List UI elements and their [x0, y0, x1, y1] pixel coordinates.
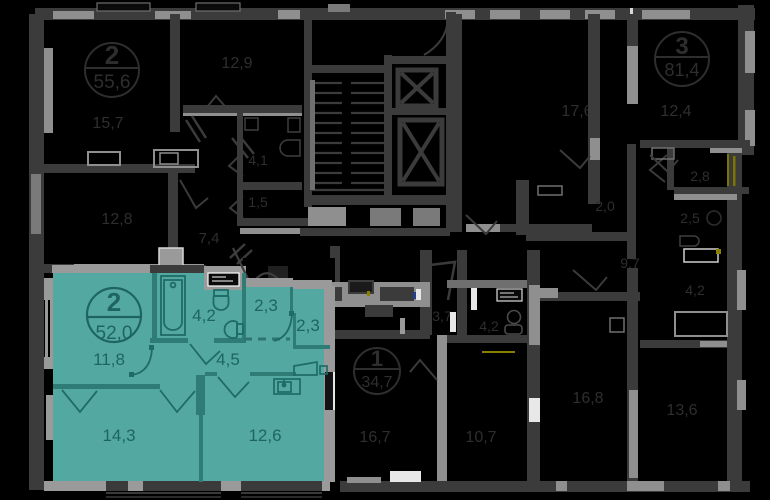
svg-text:13,6: 13,6: [666, 402, 697, 419]
svg-text:55,6: 55,6: [94, 72, 131, 93]
svg-text:16,8: 16,8: [572, 390, 603, 407]
svg-text:12,9: 12,9: [221, 55, 252, 72]
svg-text:7,4: 7,4: [199, 230, 220, 247]
svg-text:1,5: 1,5: [248, 194, 268, 210]
svg-text:2,8: 2,8: [690, 168, 710, 184]
svg-text:3,7: 3,7: [432, 308, 452, 324]
svg-text:17,6: 17,6: [561, 103, 592, 120]
svg-text:2,3: 2,3: [254, 296, 278, 315]
svg-text:12,4: 12,4: [660, 103, 691, 120]
svg-text:2: 2: [105, 40, 119, 70]
svg-text:12,6: 12,6: [248, 426, 281, 445]
svg-text:15,7: 15,7: [92, 115, 123, 132]
svg-text:2,5: 2,5: [680, 210, 700, 226]
svg-text:4,2: 4,2: [479, 318, 499, 334]
svg-text:16,7: 16,7: [359, 429, 390, 446]
svg-text:81,4: 81,4: [664, 60, 699, 80]
svg-text:2,0: 2,0: [595, 198, 615, 214]
svg-text:1: 1: [371, 346, 383, 371]
svg-text:2,3: 2,3: [296, 316, 320, 335]
svg-text:4,5: 4,5: [216, 350, 240, 369]
svg-text:52,0: 52,0: [96, 323, 133, 344]
svg-text:3: 3: [675, 33, 688, 60]
svg-text:12,8: 12,8: [101, 211, 132, 228]
svg-text:11,8: 11,8: [93, 350, 125, 369]
svg-text:4,1: 4,1: [248, 152, 268, 168]
svg-text:34,7: 34,7: [361, 374, 392, 391]
svg-text:10,7: 10,7: [465, 429, 496, 446]
svg-text:2: 2: [107, 287, 121, 317]
svg-text:4,2: 4,2: [685, 282, 705, 298]
svg-text:14,3: 14,3: [102, 426, 135, 445]
svg-text:4,2: 4,2: [192, 306, 216, 325]
